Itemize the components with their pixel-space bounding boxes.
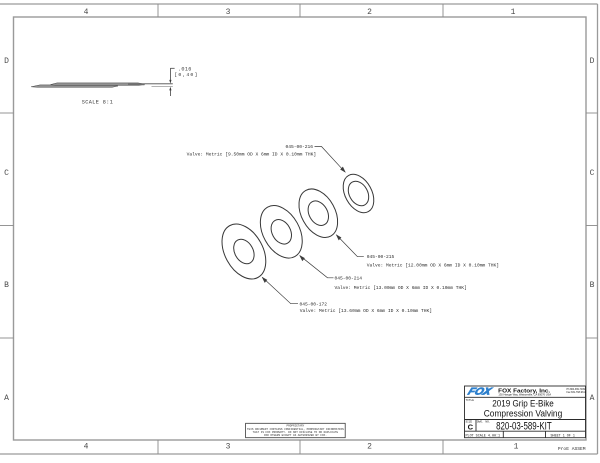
svg-text:4: 4 <box>84 442 89 451</box>
svg-text:Valve: Metric [13.00mm OD X 6m: Valve: Metric [13.00mm OD X 6mm ID X 0.1… <box>335 285 467 291</box>
svg-text:2: 2 <box>367 442 372 451</box>
svg-text:Valve: Metric [9.50mm OD X 6mm: Valve: Metric [9.50mm OD X 6mm ID X 0.10… <box>187 152 317 158</box>
svg-text:ProE ASSEM: ProE ASSEM <box>558 446 586 452</box>
svg-text:B: B <box>4 281 9 290</box>
svg-text:C: C <box>468 422 474 431</box>
svg-text:Fax 831-768-9312: Fax 831-768-9312 <box>567 391 587 394</box>
svg-text:A: A <box>4 394 9 403</box>
svg-text:045-00-172: 045-00-172 <box>300 302 328 308</box>
svg-text:045-00-214: 045-00-214 <box>335 276 363 282</box>
svg-text:2019 Grip E-Bike: 2019 Grip E-Bike <box>492 398 554 408</box>
svg-text:Valve: Metric [13.60mm OD X 6m: Valve: Metric [13.60mm OD X 6mm ID X 0.1… <box>300 308 432 314</box>
svg-text:SHEET 1 OF 1: SHEET 1 OF 1 <box>551 434 575 438</box>
svg-text:SCALE 8:1: SCALE 8:1 <box>82 99 114 105</box>
svg-text:C: C <box>4 169 9 178</box>
svg-text:4: 4 <box>84 8 89 17</box>
svg-text:[0,40]: [0,40] <box>174 72 198 78</box>
svg-text:A: A <box>590 394 595 403</box>
svg-text:2: 2 <box>367 8 372 17</box>
svg-text:D: D <box>590 57 595 66</box>
svg-text:TITLE: TITLE <box>466 399 475 402</box>
svg-text:045-00-215: 045-00-215 <box>367 254 395 260</box>
svg-text:PLOT SCALE 4.00:1: PLOT SCALE 4.00:1 <box>466 434 501 438</box>
svg-text:3: 3 <box>226 442 231 451</box>
svg-text:130 Hangar Way, Watsonville, C: 130 Hangar Way, Watsonville, CA 95076 US… <box>498 393 551 397</box>
svg-text:B: B <box>590 281 595 290</box>
svg-text:FOR OTHERS EXCEPT AS AUTHORIZE: FOR OTHERS EXCEPT AS AUTHORIZED BY FOX. <box>264 434 327 437</box>
svg-text:D: D <box>4 57 9 66</box>
svg-text:1: 1 <box>511 8 516 17</box>
svg-text:Compression Valving: Compression Valving <box>484 408 563 418</box>
svg-text:Valve: Metric [12.00mm OD X 6m: Valve: Metric [12.00mm OD X 6mm ID X 0.1… <box>367 262 499 268</box>
svg-text:DWG. NO.: DWG. NO. <box>477 421 490 424</box>
svg-text:3: 3 <box>226 8 231 17</box>
svg-text:1: 1 <box>514 442 519 451</box>
svg-text:C: C <box>590 169 595 178</box>
svg-text:.016: .016 <box>178 67 192 73</box>
svg-text:045-00-216: 045-00-216 <box>286 144 314 150</box>
svg-text:820-03-589-KIT: 820-03-589-KIT <box>496 421 552 433</box>
